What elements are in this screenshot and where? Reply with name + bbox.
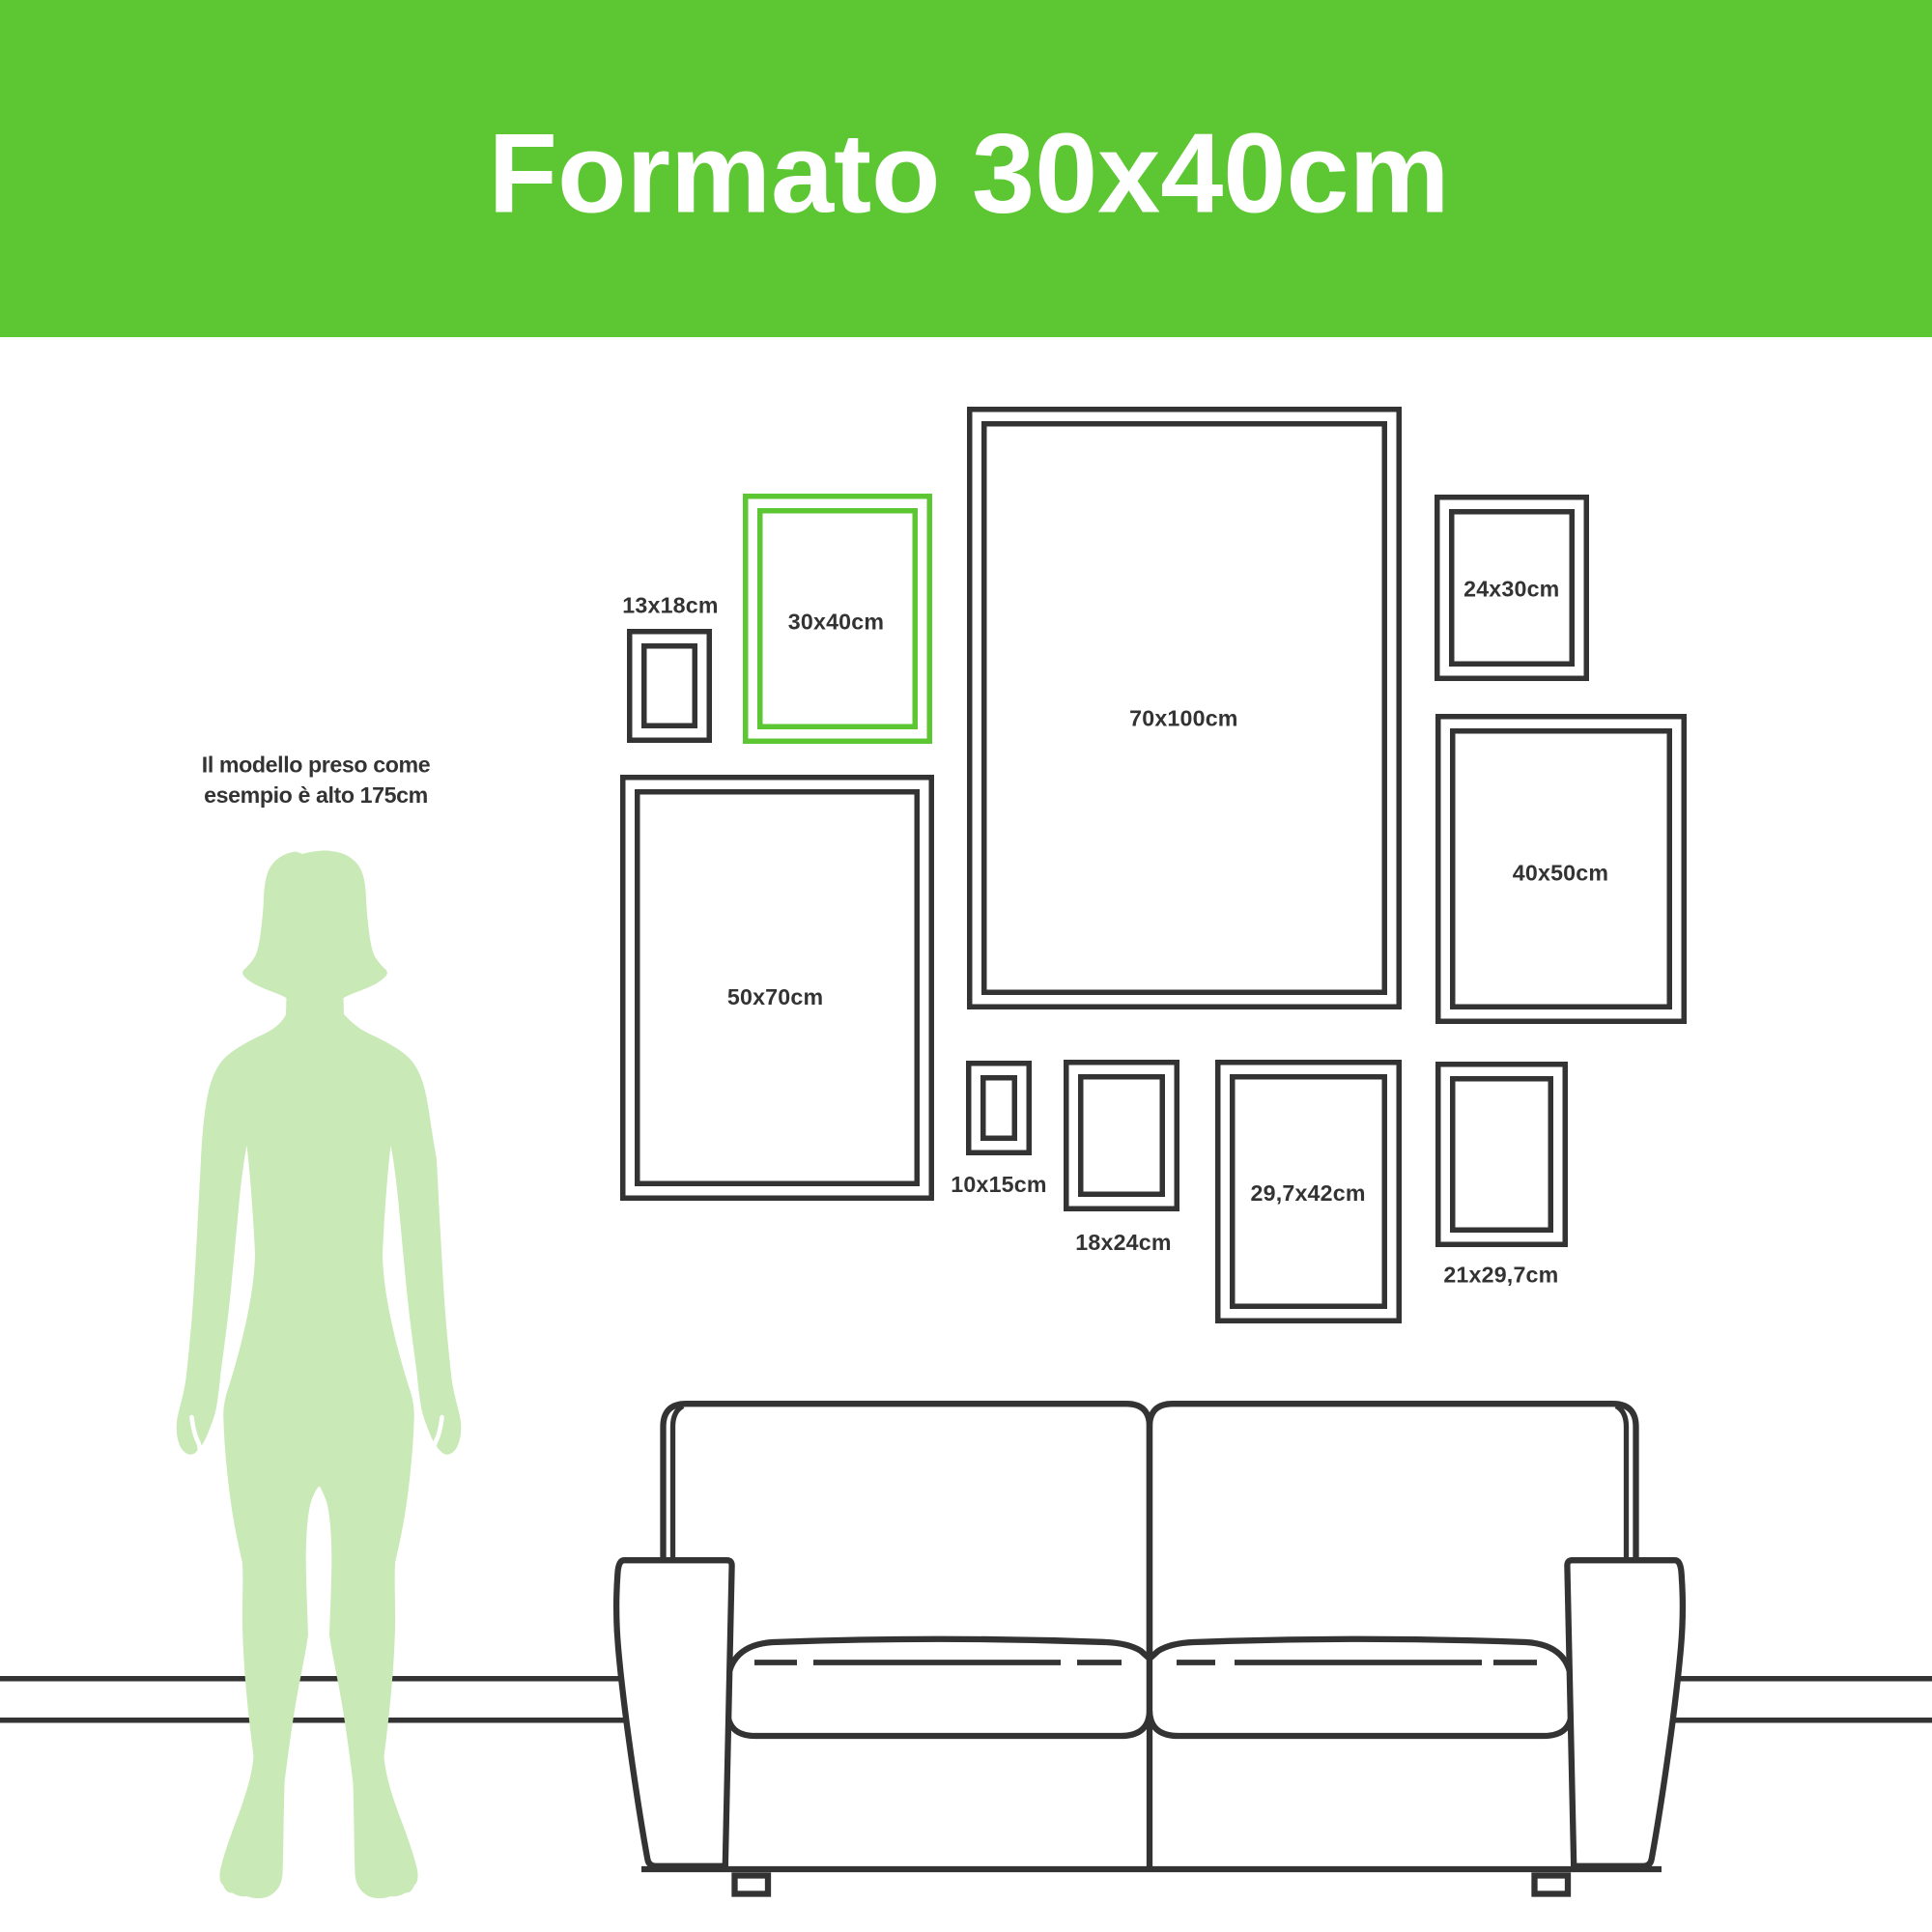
svg-text:10x15cm: 10x15cm [951,1172,1046,1197]
svg-text:40x50cm: 40x50cm [1513,860,1608,885]
svg-text:Formato 30x40cm: Formato 30x40cm [489,110,1450,237]
svg-text:30x40cm: 30x40cm [788,609,884,634]
svg-text:18x24cm: 18x24cm [1075,1230,1171,1255]
svg-text:13x18cm: 13x18cm [622,593,718,618]
svg-text:Il modello preso come: Il modello preso come [202,752,431,777]
svg-text:50x70cm: 50x70cm [727,984,823,1009]
svg-text:29,7x42cm: 29,7x42cm [1251,1180,1366,1206]
svg-text:21x29,7cm: 21x29,7cm [1443,1262,1558,1287]
svg-text:70x100cm: 70x100cm [1129,706,1238,731]
svg-text:24x30cm: 24x30cm [1463,576,1559,601]
svg-text:esempio è alto 175cm: esempio è alto 175cm [204,782,428,808]
